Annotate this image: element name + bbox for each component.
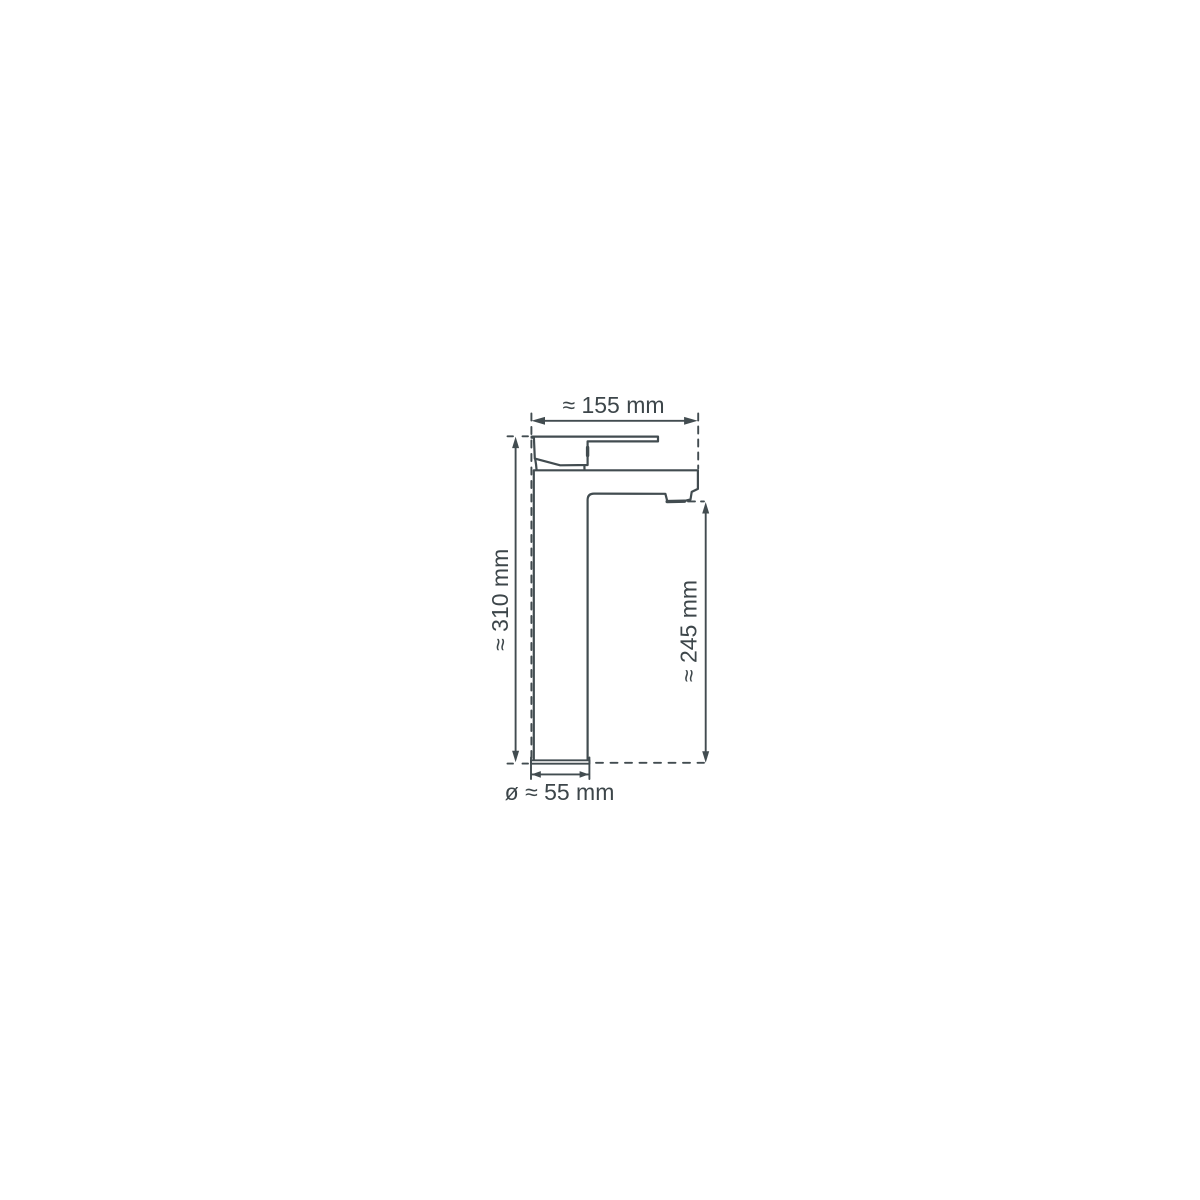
svg-text:≈ 155 mm: ≈ 155 mm xyxy=(562,392,664,418)
svg-text:ø ≈ 55 mm: ø ≈ 55 mm xyxy=(505,779,615,805)
svg-text:≈ 245 mm: ≈ 245 mm xyxy=(676,580,702,682)
svg-text:≈ 310 mm: ≈ 310 mm xyxy=(487,549,513,651)
